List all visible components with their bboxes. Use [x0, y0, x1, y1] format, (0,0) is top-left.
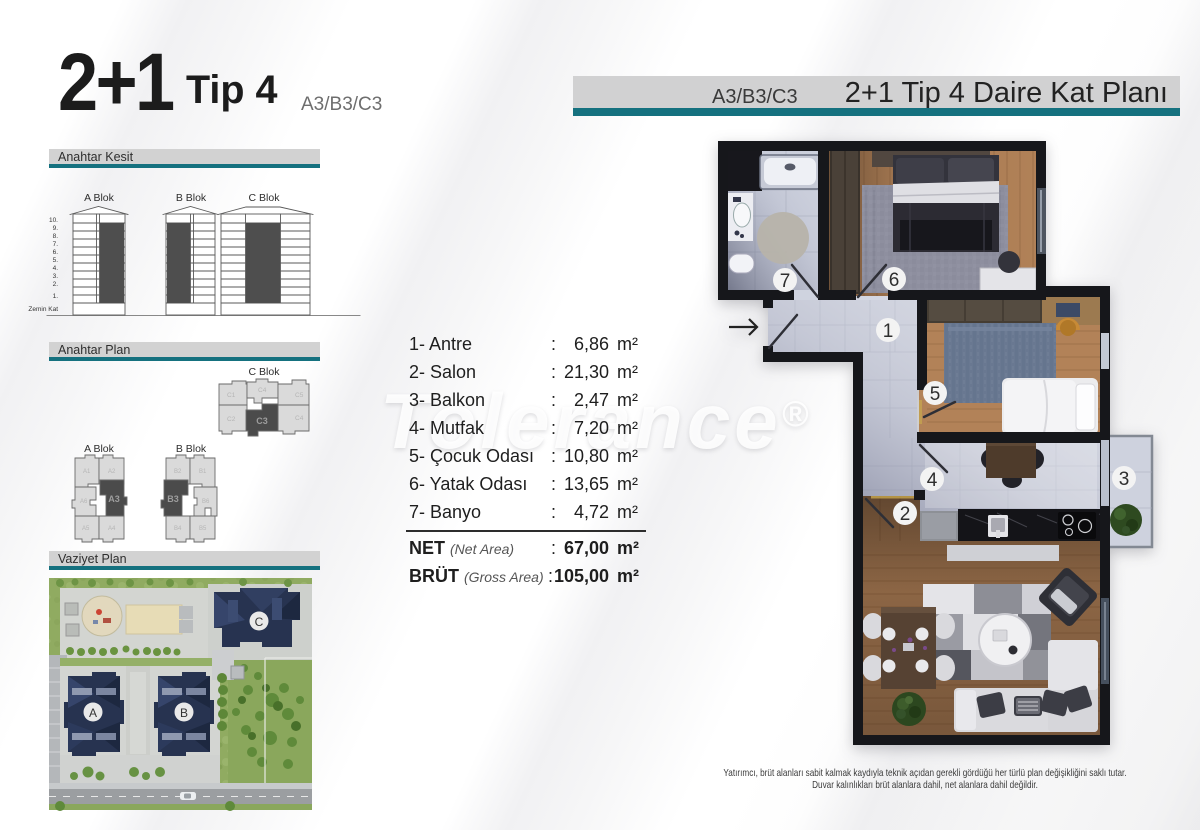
svg-text:B1: B1 [199, 469, 207, 475]
svg-text:7: 7 [780, 271, 791, 292]
svg-text:A2: A2 [108, 469, 116, 475]
svg-text:C5: C5 [295, 392, 304, 399]
svg-text:10.: 10. [49, 217, 58, 224]
svg-text:C1: C1 [227, 392, 236, 399]
svg-text:8.: 8. [53, 233, 59, 240]
svg-text:6: 6 [889, 270, 900, 291]
svg-text:B5: B5 [199, 526, 207, 532]
svg-text:5: 5 [930, 384, 941, 405]
svg-text:A1: A1 [83, 469, 91, 475]
svg-text:B Blok: B Blok [176, 192, 207, 204]
svg-text:Zemin Kat: Zemin Kat [28, 306, 58, 313]
svg-text:C4: C4 [258, 387, 267, 394]
svg-text:A5: A5 [82, 526, 90, 532]
svg-text:A6: A6 [80, 499, 88, 505]
svg-text:C3: C3 [256, 416, 268, 426]
svg-text:A: A [89, 706, 97, 720]
svg-text:9.: 9. [53, 225, 59, 232]
svg-text:2: 2 [900, 504, 911, 525]
svg-text:1.: 1. [53, 293, 59, 300]
svg-text:4.: 4. [53, 265, 59, 272]
svg-text:A Blok: A Blok [84, 443, 115, 455]
svg-text:C: C [255, 615, 264, 629]
svg-text:B6: B6 [202, 499, 210, 505]
svg-text:7.: 7. [53, 241, 59, 248]
svg-text:B2: B2 [174, 469, 182, 475]
svg-text:A3: A3 [108, 494, 120, 504]
svg-text:B3: B3 [167, 494, 179, 504]
svg-text:C Blok: C Blok [249, 366, 281, 378]
svg-text:A4: A4 [108, 526, 116, 532]
svg-text:5.: 5. [53, 257, 59, 264]
svg-text:3: 3 [1119, 469, 1130, 490]
svg-text:C Blok: C Blok [249, 192, 281, 204]
svg-text:A Blok: A Blok [84, 192, 115, 204]
svg-text:6.: 6. [53, 249, 59, 256]
svg-text:4: 4 [927, 470, 938, 491]
svg-text:1: 1 [883, 321, 894, 342]
svg-text:B Blok: B Blok [176, 443, 207, 455]
svg-text:2.: 2. [53, 281, 59, 288]
svg-text:3.: 3. [53, 273, 59, 280]
svg-text:C4: C4 [295, 415, 304, 422]
svg-text:B: B [180, 706, 188, 720]
svg-text:C2: C2 [227, 416, 236, 423]
svg-text:B4: B4 [174, 526, 182, 532]
